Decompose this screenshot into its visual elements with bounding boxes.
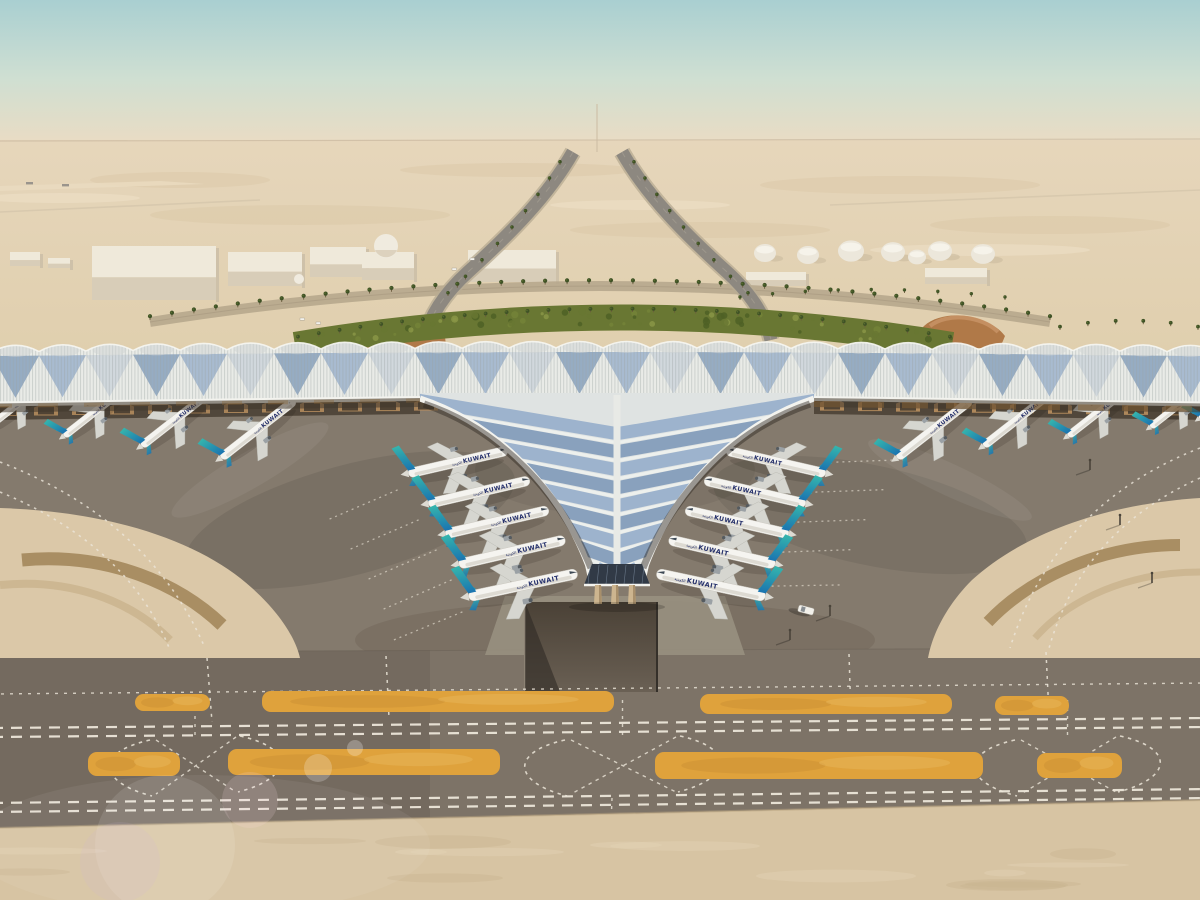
airport-aerial-rendering: Aerial rendering of Kuwait International…: [0, 0, 1200, 900]
sky: [0, 0, 1200, 142]
scene-canvas: الكويتيةKUWAITالكويتيةKUWAITالكويتيةKUWA…: [0, 0, 1200, 900]
